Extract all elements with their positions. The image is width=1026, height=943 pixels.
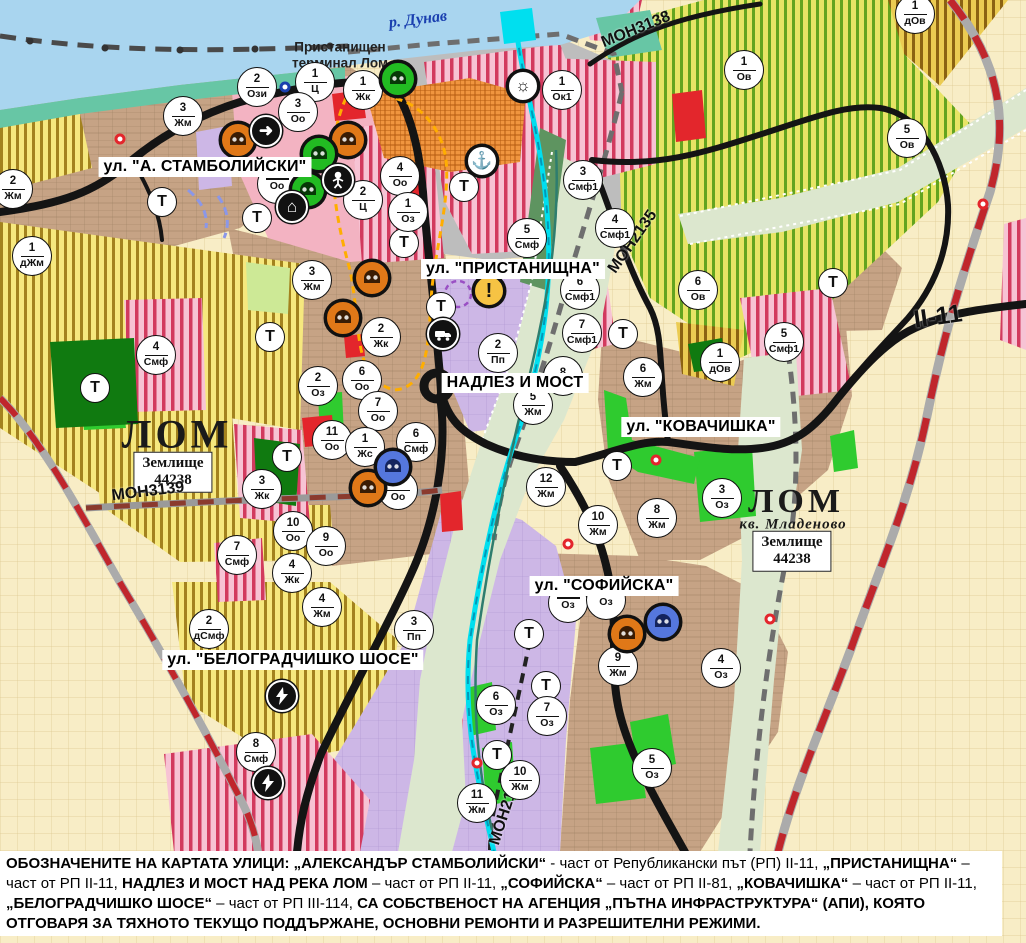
red-ring-marker-5 [472, 758, 483, 769]
zone-marker-10-Жм: 10Жм [500, 760, 540, 800]
zone-marker-1-дОв: 1дОв [700, 342, 740, 382]
caption-segment: – част от РП II-11, [368, 875, 501, 892]
arch-icon: ⌂ [276, 191, 308, 223]
transport-terminal-marker-0: Т [147, 187, 177, 217]
zone-marker-9-Оо: 9Оо [306, 526, 346, 566]
caption-segment: „ПРИСТАНИЩНА“ [823, 855, 958, 872]
zone-marker-2-Пп: 2Пп [478, 333, 518, 373]
transport-terminal-marker-9: Т [818, 268, 848, 298]
caption-segment: НАДЛЕЗ И МОСТ НАД РЕКА ЛОМ [122, 875, 368, 892]
caption-segment: „БЕЛОГРАДЧИШКО ШОСЕ“ [6, 895, 212, 912]
lightning-icon [266, 680, 298, 712]
zone-marker-8-Смф: 8Смф [236, 732, 276, 772]
transport-terminal-marker-4: Т [255, 322, 285, 352]
map-caption: ОБОЗНАЧЕНИТЕ НА КАРТАТА УЛИЦИ: „АЛЕКСАНД… [0, 851, 1002, 936]
red-ring-marker-4 [978, 199, 989, 210]
zone-marker-3-Пп: 3Пп [394, 610, 434, 650]
monument-blue-icon [375, 449, 411, 485]
zone-marker-7-Оз: 7Оз [527, 696, 567, 736]
zone-marker-9-Жм: 9Жм [598, 646, 638, 686]
transport-terminal-marker-6: Т [80, 373, 110, 403]
street-label-0: ул. "А. СТАМБОЛИЙСКИ" [99, 157, 312, 177]
street-label-5: ул. "БЕЛОГРАДЧИШКО ШОСЕ" [162, 650, 423, 670]
zone-marker-3-Оз: 3Оз [702, 478, 742, 518]
zone-marker-3-Смф1: 3Смф1 [563, 160, 603, 200]
zone-marker-4-Смф: 4Смф [136, 335, 176, 375]
zone-marker-1-Ов: 1Ов [724, 50, 764, 90]
zone-marker-5-Ов: 5Ов [887, 118, 927, 158]
warning-icon: ! [473, 275, 505, 307]
monument-blue-icon [645, 604, 681, 640]
transport-terminal-marker-1: Т [242, 203, 272, 233]
zone-marker-7-Оо: 7Оо [358, 391, 398, 431]
lightning-icon [252, 767, 284, 799]
zone-marker-3-Оо: 3Оо [278, 92, 318, 132]
place-label-lom-0: ЛОМ [122, 411, 233, 458]
zone-marker-1-Оз: 1Оз [388, 192, 428, 232]
transport-terminal-marker-8: Т [608, 319, 638, 349]
region-pink-h [1000, 218, 1026, 350]
zone-marker-4-Жк: 4Жк [272, 553, 312, 593]
zemlishte-box-1: Землище44238 [752, 531, 831, 572]
caption-segment: – част от РП II-11, [848, 875, 976, 892]
caption-segment: „АЛЕКСАНДЪР СТАМБОЛИЙСКИ“ [294, 855, 546, 872]
street-label-2: НАДЛЕЗ И МОСТ [442, 373, 589, 393]
monument-orange-icon [609, 616, 645, 652]
zone-marker-4-Оз: 4Оз [701, 648, 741, 688]
anchor-icon: ⚓ [466, 145, 498, 177]
sun-icon: ☼ [507, 70, 539, 102]
transport-terminal-marker-5: Т [272, 442, 302, 472]
zone-marker-6-Ов: 6Ов [678, 270, 718, 310]
zoning-map-canvas[interactable]: р. ДунавПристанищентерминал ЛомMOH3138MO… [0, 0, 1026, 943]
caption-segment: – част от РП II-81, [603, 875, 737, 892]
zone-marker-10-Жм: 10Жм [578, 505, 618, 545]
monument-orange-icon [325, 300, 361, 336]
monument-orange-icon [354, 260, 390, 296]
zone-marker-3-Жм: 3Жм [292, 260, 332, 300]
zone-marker-2-Оз: 2Оз [298, 366, 338, 406]
person-icon [322, 164, 354, 196]
zone-marker-5-Оз: 5Оз [632, 748, 672, 788]
zone-marker-7-Смф1: 7Смф1 [562, 313, 602, 353]
transport-terminal-marker-10: Т [602, 451, 632, 481]
zone-marker-7-Смф: 7Смф [217, 535, 257, 575]
zone-marker-8-Жм: 8Жм [637, 498, 677, 538]
transport-terminal-marker-2: Т [389, 228, 419, 258]
zone-marker-6-Оз: 6Оз [476, 685, 516, 725]
red-ring-marker-0 [115, 134, 126, 145]
caption-segment: „КОВАЧИШКА“ [736, 875, 848, 892]
zone-marker-5-Смф1: 5Смф1 [764, 322, 804, 362]
zone-marker-4-Оо: 4Оо [380, 156, 420, 196]
region-lightgreen [246, 262, 290, 314]
caption-segment: ОБОЗНАЧЕНИТЕ НА КАРТАТА УЛИЦИ: [6, 855, 294, 872]
zone-marker-6-Жм: 6Жм [623, 357, 663, 397]
zone-marker-12-Жм: 12Жм [526, 467, 566, 507]
zone-marker-5-Смф: 5Смф [507, 218, 547, 258]
zone-marker-2-Жк: 2Жк [361, 317, 401, 357]
monument-green-icon [380, 61, 416, 97]
zone-marker-11-Жм: 11Жм [457, 783, 497, 823]
zone-marker-1-Ок1: 1Ок1 [542, 70, 582, 110]
canal-top-blob [500, 8, 536, 44]
caption-segment: „СОФИЙСКА“ [500, 875, 602, 892]
street-label-3: ул. "КОВАЧИШКА" [621, 417, 780, 437]
zone-marker-1-дЖм: 1дЖм [12, 236, 52, 276]
arrow-icon: ➜ [250, 115, 282, 147]
blue-ring-marker-6 [280, 82, 291, 93]
red-ring-marker-3 [765, 614, 776, 625]
zone-marker-1-Жк: 1Жк [343, 70, 383, 110]
street-label-1: ул. "ПРИСТАНИЩНА" [421, 259, 605, 279]
caption-segment: - част от Републикански път (РП) II-11, [546, 855, 822, 872]
zone-marker-3-Жк: 3Жк [242, 469, 282, 509]
truck-icon [427, 318, 459, 350]
transport-terminal-marker-7: Т [449, 172, 479, 202]
zone-marker-2-дСмф: 2дСмф [189, 609, 229, 649]
caption-segment: – част от РП III-114, [212, 895, 357, 912]
red-ring-marker-2 [563, 539, 574, 550]
street-label-4: ул. "СОФИЙСКА" [530, 576, 679, 596]
zone-marker-4-Смф1: 4Смф1 [595, 208, 635, 248]
transport-terminal-marker-11: Т [514, 619, 544, 649]
zone-marker-4-Жм: 4Жм [302, 587, 342, 627]
red-ring-marker-1 [651, 455, 662, 466]
region-red-top [672, 90, 706, 142]
zone-marker-2-Ози: 2Ози [237, 67, 277, 107]
zone-marker-3-Жм: 3Жм [163, 96, 203, 136]
place-label-lom-1: ЛОМ [748, 483, 844, 521]
